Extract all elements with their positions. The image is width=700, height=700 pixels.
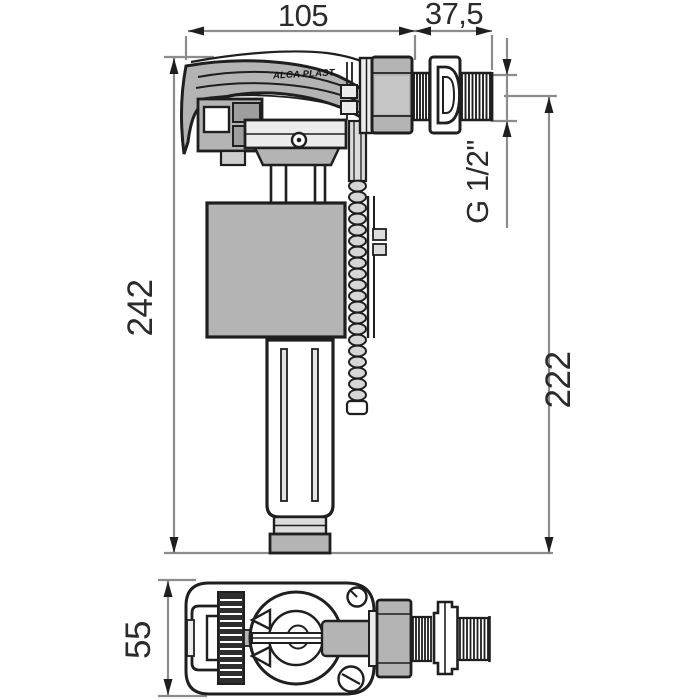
pivot-bridge: [245, 120, 346, 165]
threaded-rod-coil: [349, 181, 366, 401]
inlet-shank-plan: [369, 600, 490, 677]
dimension-label-install-height: 222: [539, 352, 578, 409]
shank-thread-outer: [460, 72, 492, 121]
mount-hook: [348, 588, 367, 607]
dimension-label-thread-spec: G 1/2": [460, 140, 495, 224]
shank-nut: [372, 57, 412, 133]
dimension-label-shank-length: 37,5: [425, 0, 483, 31]
dimension-label-overall-height: 242: [121, 280, 160, 337]
float-body: [207, 203, 345, 337]
wing-nut: [430, 57, 460, 133]
dimension-label-top-width: 105: [278, 0, 328, 33]
main-view: ALCA PLAST: [182, 51, 492, 553]
shank-thread-inner: [412, 73, 430, 120]
guide-rails-upper: [271, 165, 325, 203]
screw-head: [339, 667, 364, 692]
outlet-tube: [267, 340, 333, 553]
fill-valve-technical-drawing: ALCA PLAST: [0, 0, 700, 700]
dimension-label-body-depth: 55: [119, 621, 158, 659]
bottom-view: [186, 583, 490, 694]
adjustment-rod: [347, 121, 386, 414]
inlet-shank: [341, 57, 492, 133]
tube-bottom-cap: [270, 534, 330, 553]
